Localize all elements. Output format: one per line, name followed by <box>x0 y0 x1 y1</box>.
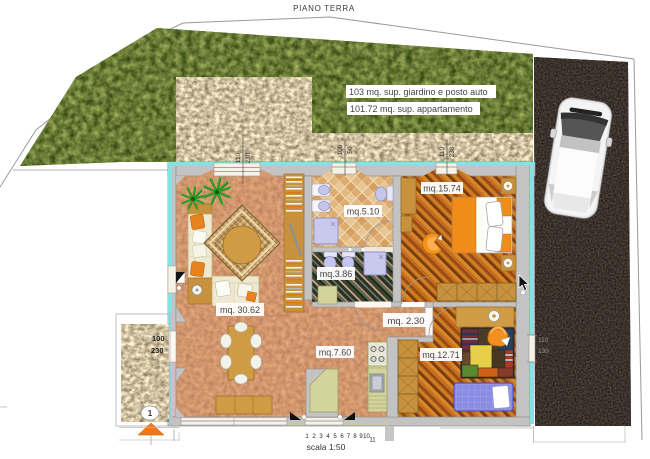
svg-text:mq.5.10: mq.5.10 <box>347 207 380 217</box>
svg-text:mq. 30.62: mq. 30.62 <box>220 305 260 315</box>
svg-text:230: 230 <box>449 146 456 157</box>
svg-text:110: 110 <box>439 146 446 157</box>
svg-text:mq.12.71: mq.12.71 <box>422 350 460 360</box>
svg-text:101.72 mq. sup. appartamento: 101.72 mq. sup. appartamento <box>350 104 473 114</box>
svg-text:130: 130 <box>538 348 549 355</box>
svg-text:103 mq. sup. giardino e posto: 103 mq. sup. giardino e posto auto <box>349 87 488 97</box>
svg-text:scala 1:50: scala 1:50 <box>307 442 346 452</box>
svg-text:mq.3.86: mq.3.86 <box>320 269 353 279</box>
svg-text:100: 100 <box>337 144 344 155</box>
svg-text:1: 1 <box>148 409 153 418</box>
svg-text:110: 110 <box>538 337 549 344</box>
svg-text:50: 50 <box>347 146 354 154</box>
svg-text:230: 230 <box>151 346 164 355</box>
svg-text:11: 11 <box>369 438 376 444</box>
svg-text:100: 100 <box>152 334 165 343</box>
svg-text:mq.15.74: mq.15.74 <box>423 184 461 194</box>
svg-text:PIANO TERRA: PIANO TERRA <box>293 4 355 13</box>
svg-text:230: 230 <box>245 152 252 163</box>
svg-text:mq.7.60: mq.7.60 <box>319 348 352 358</box>
svg-text:mq. 2.30: mq. 2.30 <box>388 316 425 327</box>
svg-text:110: 110 <box>235 152 242 163</box>
